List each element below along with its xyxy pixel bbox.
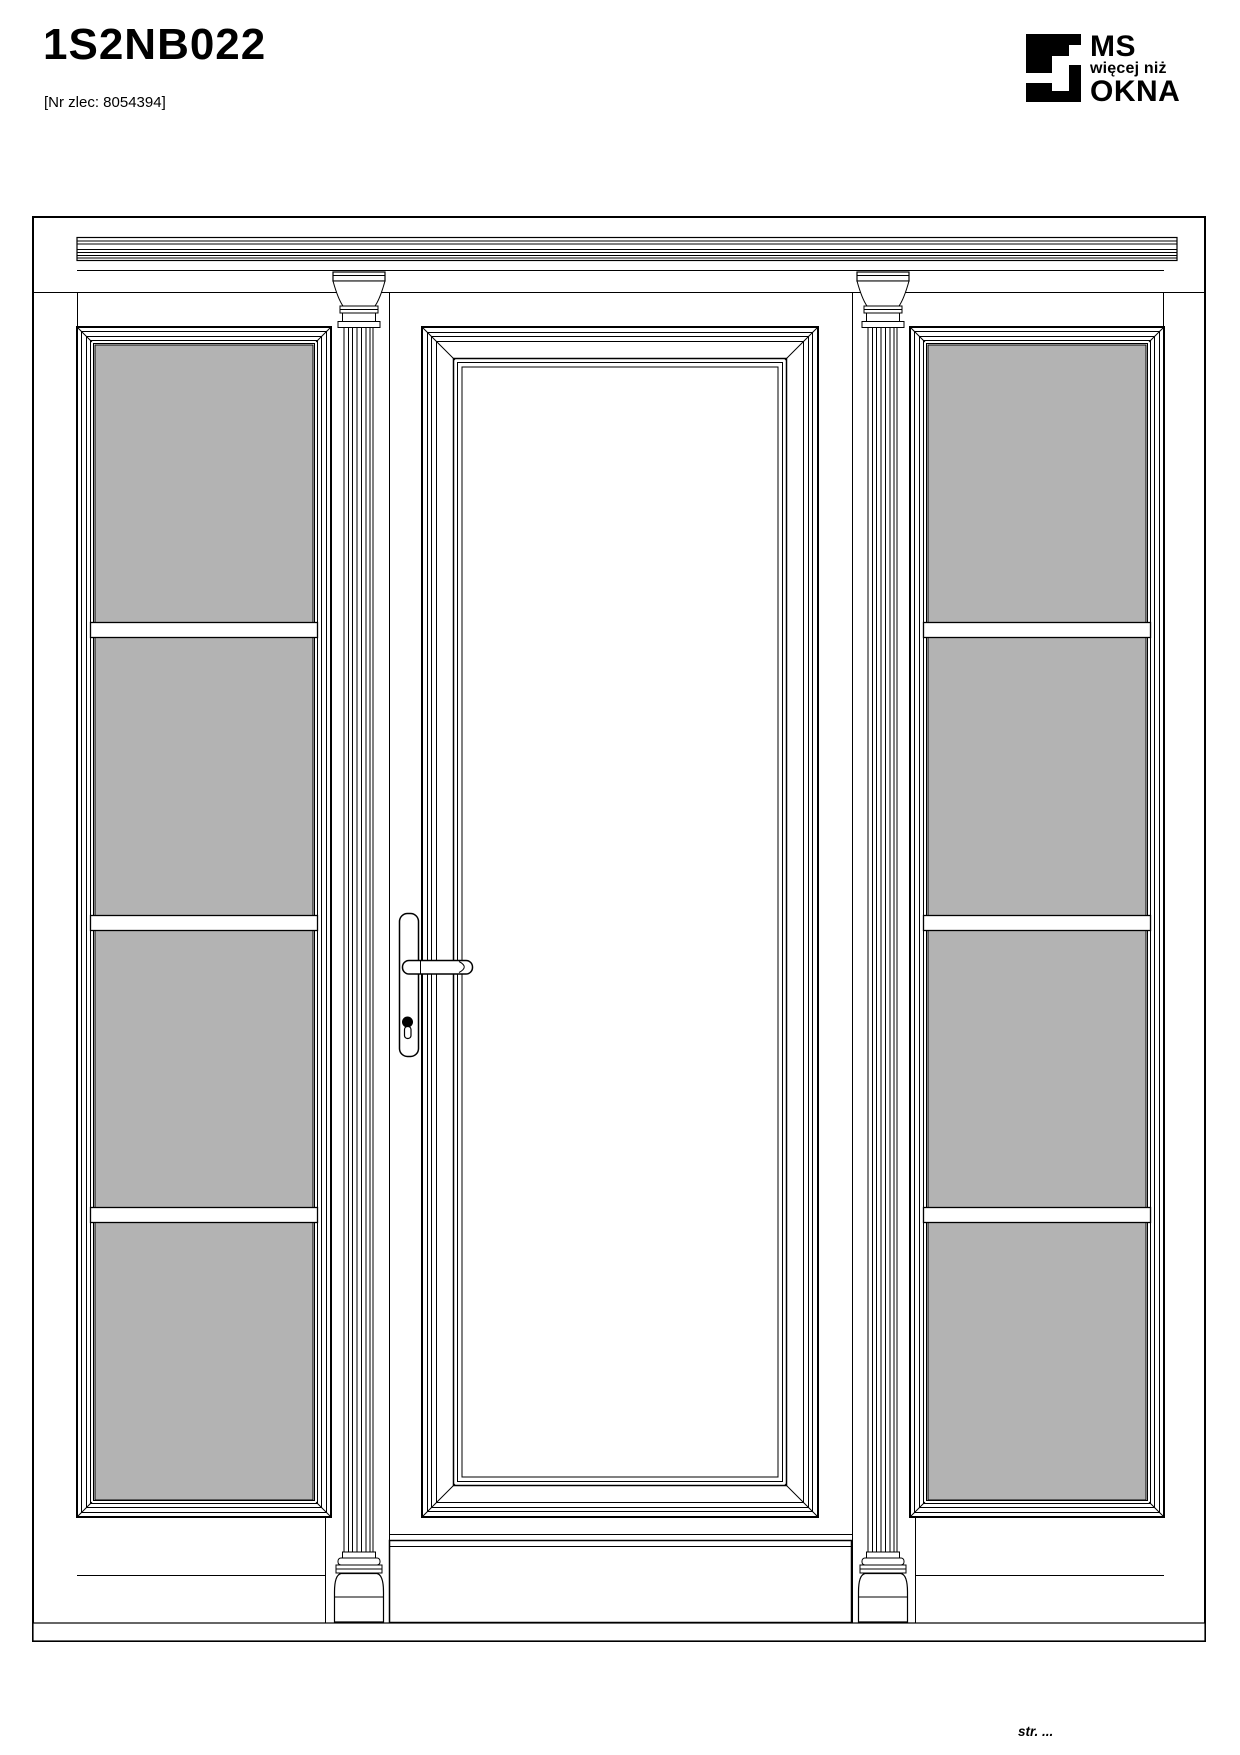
glazing-bar bbox=[91, 916, 318, 931]
right-sidelight bbox=[910, 327, 1164, 1517]
door-elevation-drawing bbox=[0, 0, 1240, 1755]
handle-lever bbox=[403, 961, 473, 975]
door-clear-glass bbox=[462, 367, 778, 1477]
bottom-sill bbox=[33, 1623, 1205, 1641]
cornice-moulding bbox=[77, 238, 1177, 261]
glazing-bar bbox=[91, 1208, 318, 1223]
keyhole-slot bbox=[405, 1027, 412, 1039]
page-number: str. ... bbox=[1018, 1724, 1053, 1739]
kick-panel bbox=[390, 1541, 852, 1623]
lock-cylinder-icon bbox=[402, 1017, 413, 1028]
glazing-bar bbox=[91, 623, 318, 638]
column-base bbox=[335, 1552, 384, 1622]
left-sidelight bbox=[77, 327, 331, 1517]
